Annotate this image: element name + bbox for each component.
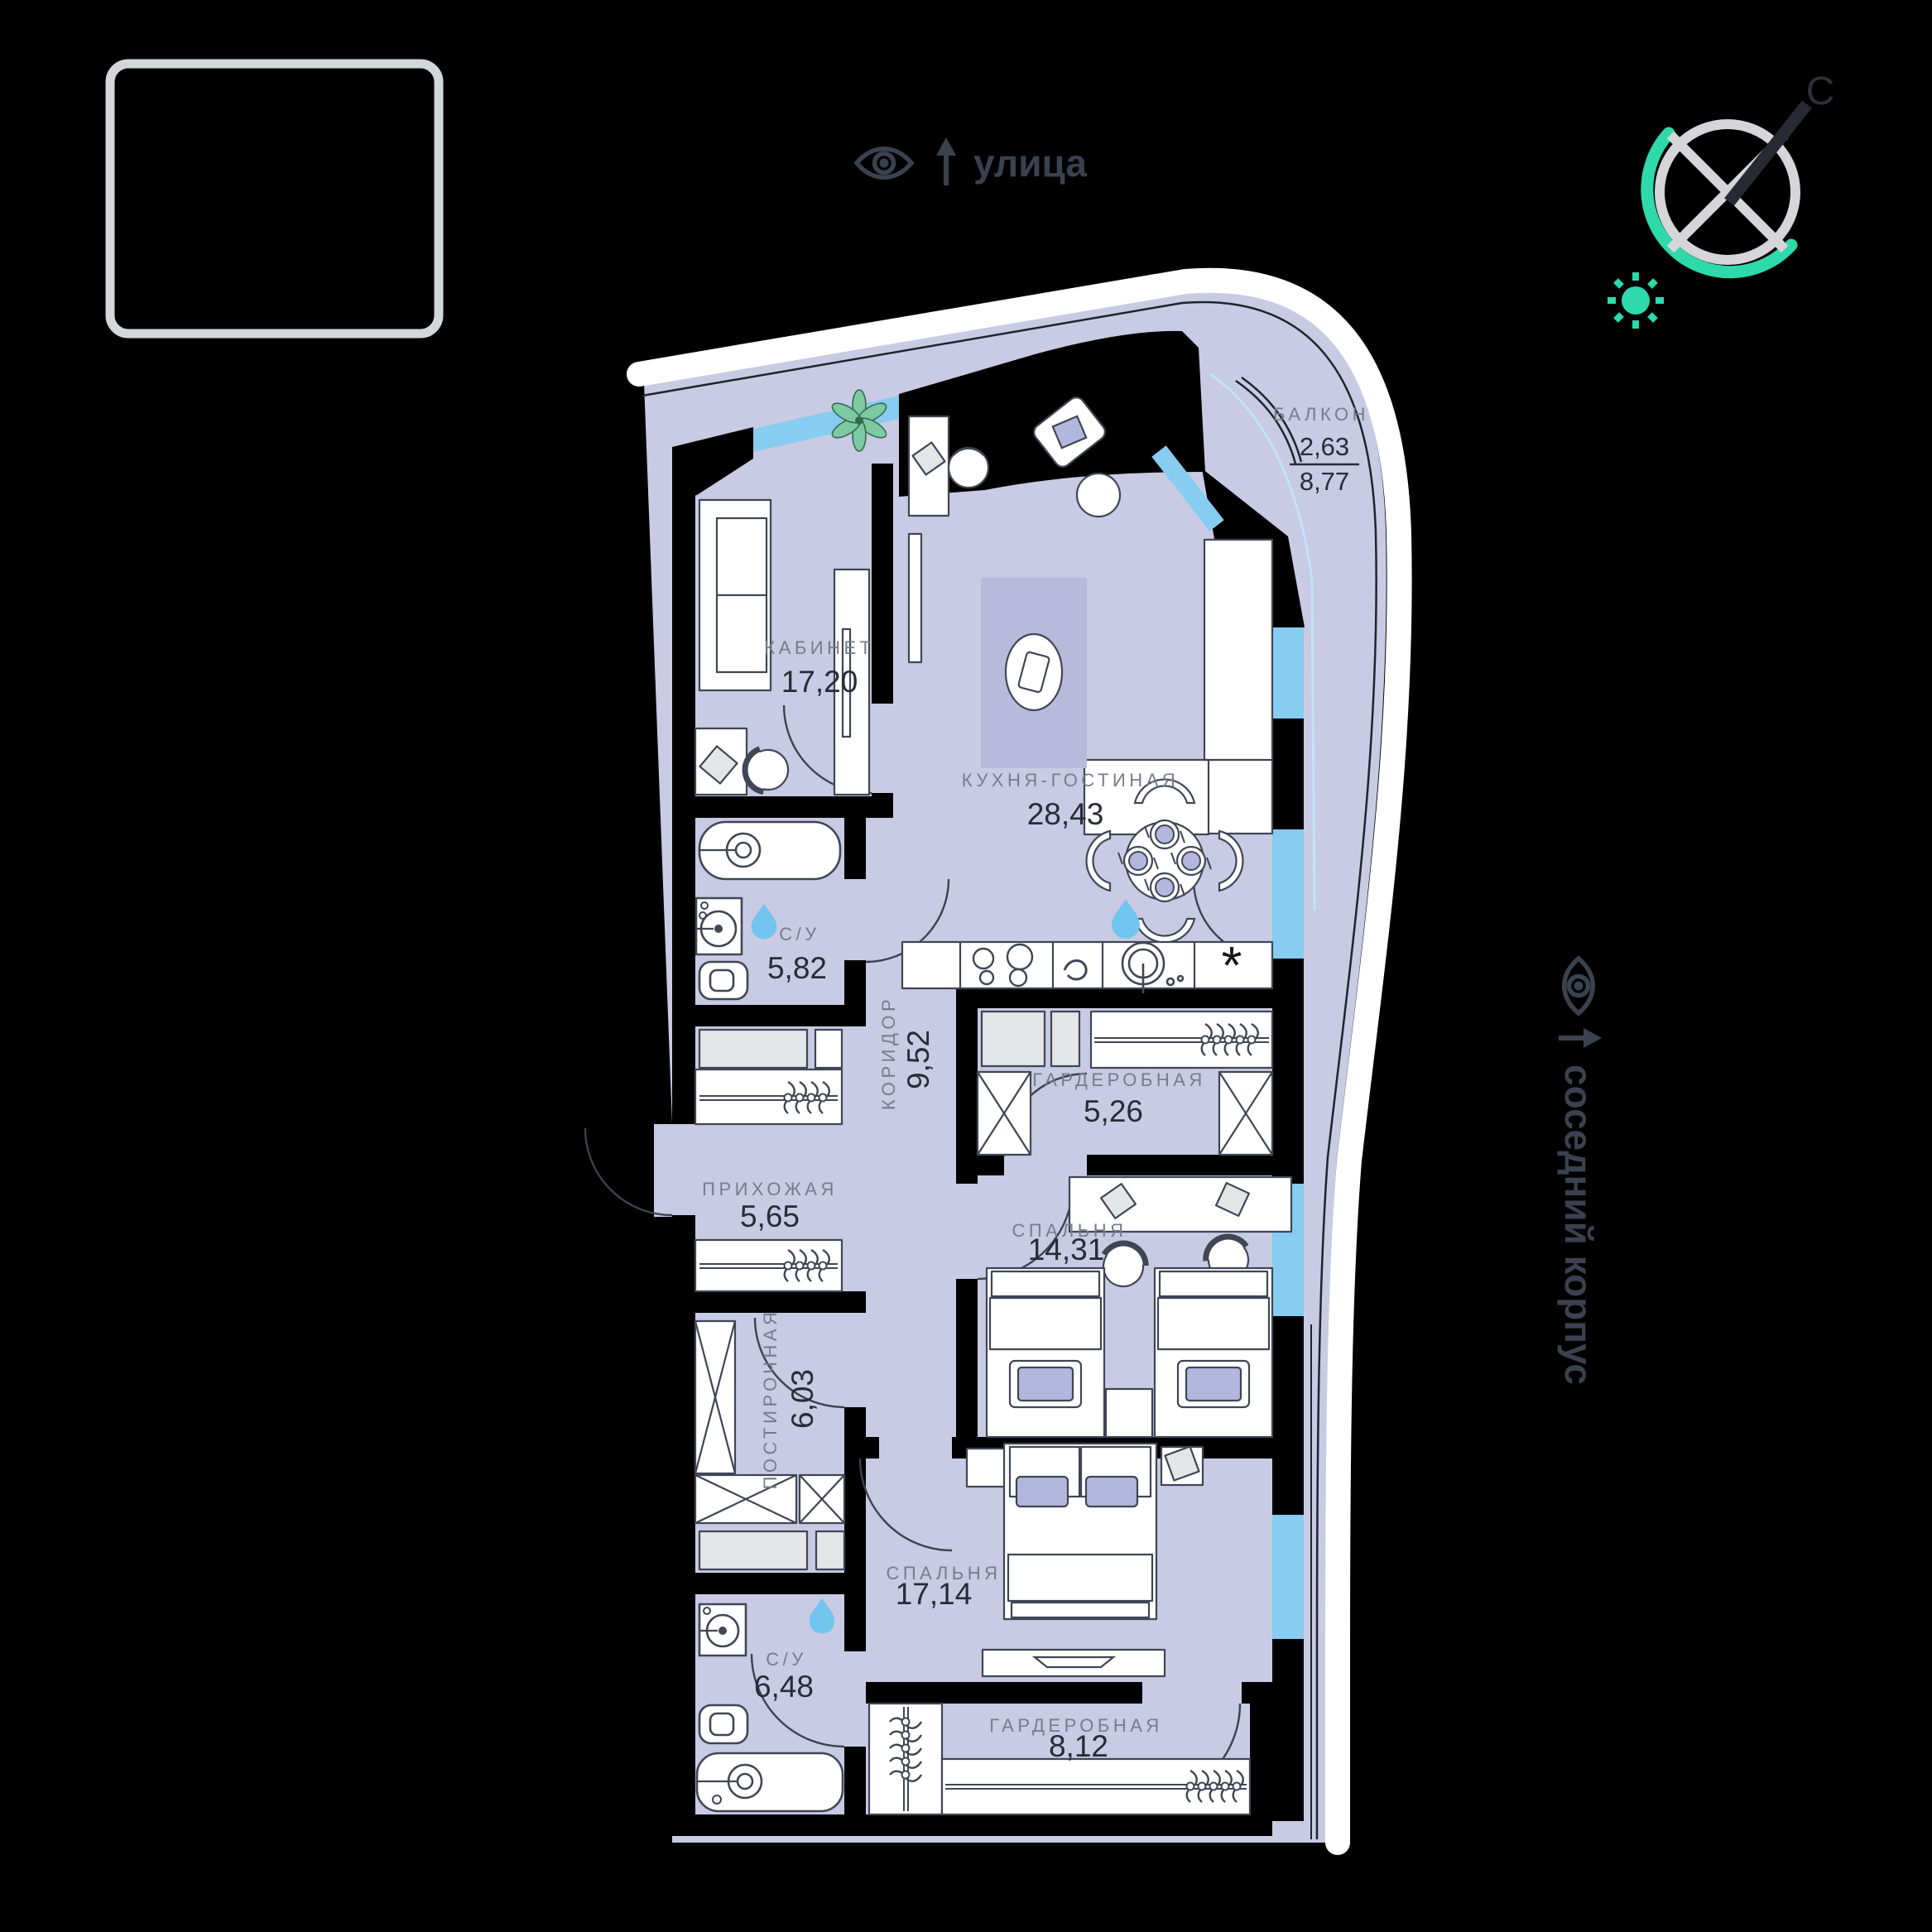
room-label-su1: С/У <box>779 924 819 944</box>
room-area-su1: 5,82 <box>767 951 827 985</box>
corner-sofa <box>1204 540 1272 834</box>
north-label: С <box>1806 70 1835 113</box>
room-area-koridor: 9,52 <box>901 1030 935 1089</box>
room-label-balcony: БАЛКОН <box>1273 404 1369 425</box>
nightstand <box>967 1449 1008 1487</box>
room-area-balcony-total: 8,77 <box>1300 467 1349 496</box>
room-label-su2: С/У <box>766 1649 806 1670</box>
room-area-hallway: 5,65 <box>740 1199 800 1233</box>
sun-icon <box>1608 272 1664 329</box>
room-label-koridor: КОРИДОР <box>878 996 899 1110</box>
room-label-wardrobe1: ГАРДЕРОБНАЯ <box>1032 1069 1206 1090</box>
nightstand <box>1106 1389 1152 1437</box>
room-area-bedroom1: 14,31 <box>1028 1233 1105 1266</box>
street-label: улица <box>973 142 1087 185</box>
room-area-laundry: 6,03 <box>786 1369 819 1429</box>
street-annotation: улица <box>857 137 1087 185</box>
room-label-laundry: ПОСТИРОЧНАЯ <box>760 1309 781 1490</box>
room-label-kabinet: КАБИНЕТ <box>764 637 874 658</box>
single-bed <box>987 1268 1104 1437</box>
floorplan-canvas: улица С соседний корпус <box>0 0 1932 1932</box>
floorplan: * <box>585 281 1400 1843</box>
eye-icon <box>1564 959 1593 1013</box>
room-area-su2: 6,48 <box>754 1670 814 1704</box>
room-label-hallway: ПРИХОЖАЯ <box>702 1179 838 1199</box>
neighbor-label: соседний корпус <box>1557 1065 1600 1385</box>
legend-box <box>110 64 439 334</box>
room-area-wardrobe2: 8,12 <box>1049 1729 1108 1763</box>
room-area-kabinet: 17,20 <box>781 665 858 699</box>
room-area-kitchen: 28,43 <box>1027 797 1104 831</box>
side-table <box>1077 473 1120 517</box>
room-area-bedroom2: 17,14 <box>896 1577 973 1611</box>
neighbor-annotation: соседний корпус <box>1557 959 1602 1385</box>
single-bed <box>1155 1268 1272 1437</box>
compass-icon: С <box>1608 70 1834 329</box>
floorplan-svg: улица С соседний корпус <box>0 0 1932 1932</box>
room-area-balcony-coeff: 2,63 <box>1300 432 1349 461</box>
arrow-up-icon <box>1559 1028 1602 1048</box>
room-area-wardrobe1: 5,26 <box>1084 1094 1143 1128</box>
room-label-kitchen: КУХНЯ-ГОСТИНАЯ <box>962 770 1179 791</box>
kitchen-counter: * <box>902 935 1272 995</box>
eye-icon <box>857 149 911 178</box>
dresser <box>983 1650 1165 1676</box>
coffee-table <box>1006 634 1062 710</box>
double-bed <box>1004 1444 1156 1619</box>
arrow-up-icon <box>936 137 956 185</box>
dishwasher-icon: * <box>1222 935 1242 995</box>
